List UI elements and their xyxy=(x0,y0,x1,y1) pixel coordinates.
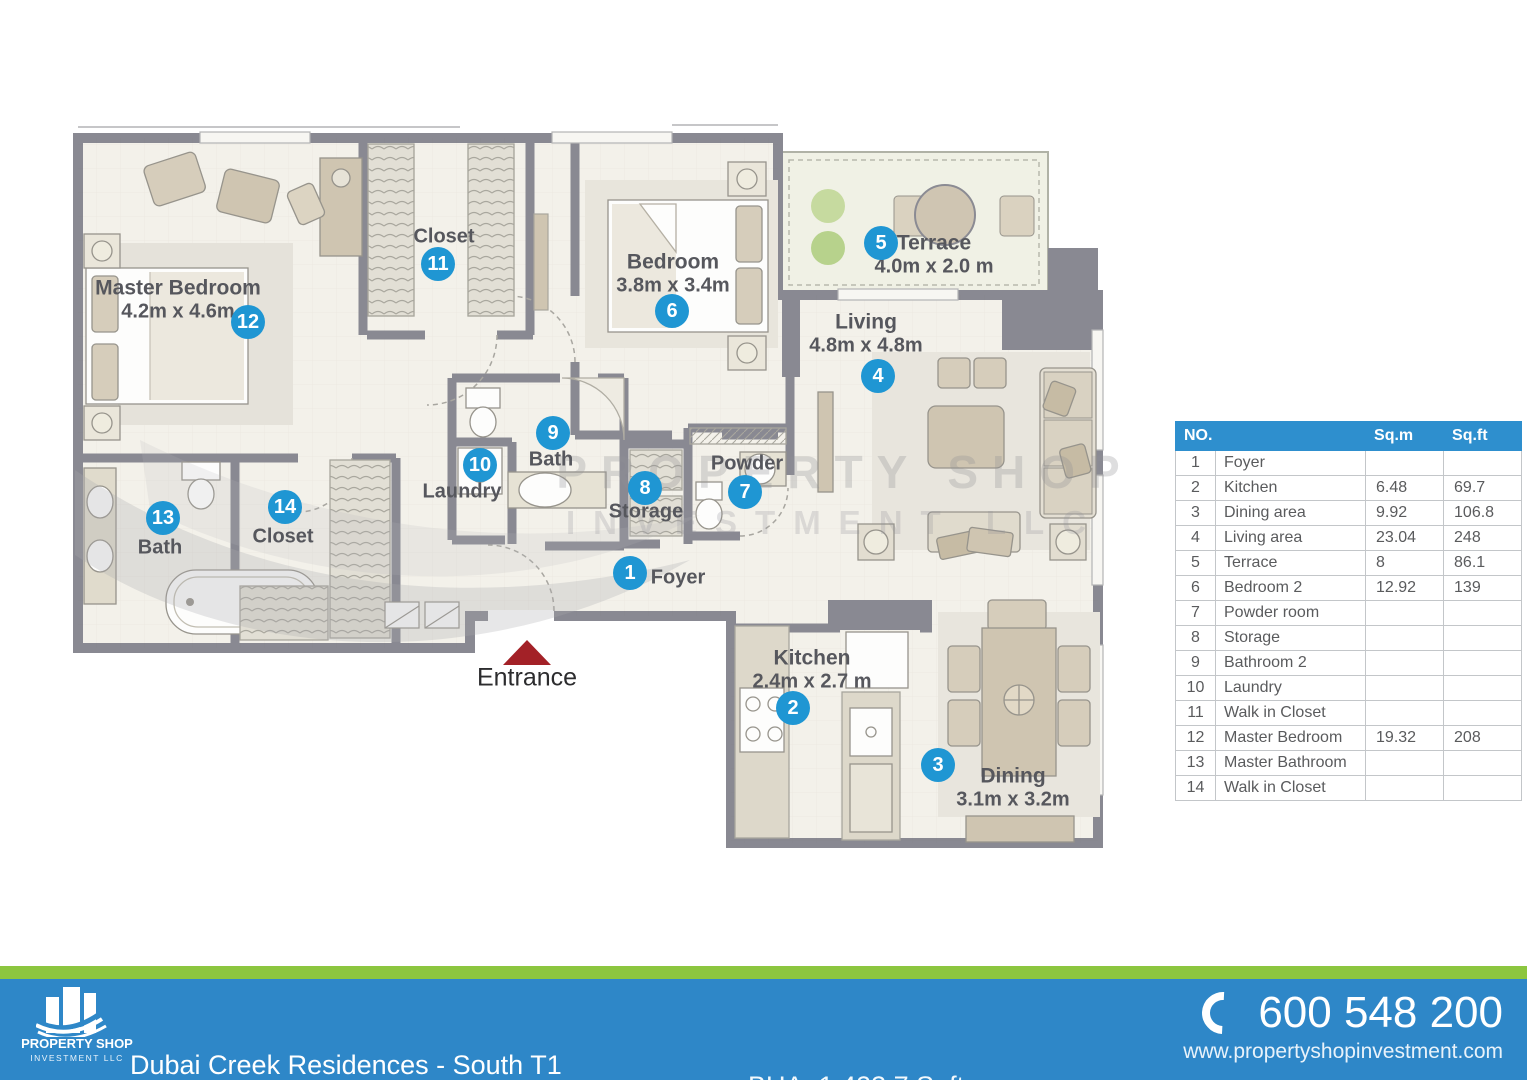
room-label-bath2: Bath xyxy=(529,449,573,472)
room-marker-2: 2 xyxy=(776,691,810,725)
bua-sqft: BUA: 1,423.7 Sqft xyxy=(748,1068,964,1080)
area-table: NO. Sq.m Sq.ft 1Foyer 2Kitchen6.4869.7 3… xyxy=(1175,421,1522,801)
entrance-label: Entrance xyxy=(477,664,577,693)
room-marker-4: 4 xyxy=(861,359,895,393)
website-url: www.propertyshopinvestment.com xyxy=(1183,1040,1503,1064)
footer-contact: 600 548 200 www.propertyshopinvestment.c… xyxy=(1183,988,1503,1064)
property-shop-logo-icon xyxy=(36,985,120,1037)
footer-titles: Dubai Creek Residences - South T1 2 Bedr… xyxy=(130,983,562,1080)
room-label-closet-14: Closet xyxy=(252,526,313,549)
room-marker-6: 6 xyxy=(655,294,689,328)
room-label-kitchen: Kitchen 2.4m x 2.7 m xyxy=(753,646,872,693)
room-marker-5: 5 xyxy=(864,226,898,260)
phone-icon xyxy=(1194,983,1253,1042)
table-row: 2Kitchen6.4869.7 xyxy=(1176,476,1522,501)
table-row: 5Terrace886.1 xyxy=(1176,551,1522,576)
room-label-dining: Dining 3.1m x 3.2m xyxy=(956,764,1069,811)
table-row: 1Foyer xyxy=(1176,451,1522,476)
flyer-page: PROPERTY SHOP INVESTMENT LLC Master Bedr… xyxy=(0,0,1527,1080)
header-sqft: Sq.ft xyxy=(1444,422,1522,451)
room-marker-13: 13 xyxy=(146,501,180,535)
table-row: 11Walk in Closet xyxy=(1176,701,1522,726)
room-marker-11: 11 xyxy=(421,247,455,281)
room-marker-3: 3 xyxy=(921,748,955,782)
plant-icon xyxy=(811,189,845,223)
room-marker-10: 10 xyxy=(463,448,497,482)
room-marker-12: 12 xyxy=(231,305,265,339)
room-label-master-bath: Bath xyxy=(138,537,182,560)
table-row: 4Living area23.04248 xyxy=(1176,526,1522,551)
room-label-living: Living 4.8m x 4.8m xyxy=(809,310,922,357)
header-no: NO. xyxy=(1176,422,1366,451)
plant-icon xyxy=(811,231,845,265)
table-row: 14Walk in Closet xyxy=(1176,776,1522,801)
room-label-powder: Powder xyxy=(711,453,783,476)
table-row: 13Master Bathroom xyxy=(1176,751,1522,776)
table-row: 12Master Bedroom19.32208 xyxy=(1176,726,1522,751)
table-row: 3Dining area9.92106.8 xyxy=(1176,501,1522,526)
logo-text-line2: INVESTMENT LLC xyxy=(12,1053,142,1063)
room-marker-8: 8 xyxy=(628,471,662,505)
room-label-walkin-closet-11: Closet xyxy=(413,226,474,249)
logo-text-line1: PROPERTY SHOP xyxy=(12,1036,142,1051)
room-marker-1: 1 xyxy=(613,556,647,590)
footer-bua: BUA: 1,423.7 Sqft BUA: 132.3 Sqm xyxy=(748,994,964,1080)
footer-green-bar xyxy=(0,966,1527,979)
room-label-bedroom2: Bedroom 3.8m x 3.4m xyxy=(616,250,729,297)
table-row: 8Storage xyxy=(1176,626,1522,651)
entrance-arrow-icon xyxy=(503,640,551,665)
phone-number: 600 548 200 xyxy=(1258,988,1503,1038)
table-row: 10Laundry xyxy=(1176,676,1522,701)
header-sqm: Sq.m xyxy=(1366,422,1444,451)
phone-row: 600 548 200 xyxy=(1183,988,1503,1038)
room-label-laundry: Laundry xyxy=(423,481,502,504)
room-marker-9: 9 xyxy=(536,416,570,450)
room-label-foyer: Foyer xyxy=(651,567,705,590)
area-table-header-row: NO. Sq.m Sq.ft xyxy=(1176,422,1522,451)
project-title: Dubai Creek Residences - South T1 xyxy=(130,1049,562,1080)
room-marker-7: 7 xyxy=(728,475,762,509)
table-row: 9Bathroom 2 xyxy=(1176,651,1522,676)
table-row: 6Bedroom 212.92139 xyxy=(1176,576,1522,601)
room-marker-14: 14 xyxy=(268,490,302,524)
table-row: 7Powder room xyxy=(1176,601,1522,626)
